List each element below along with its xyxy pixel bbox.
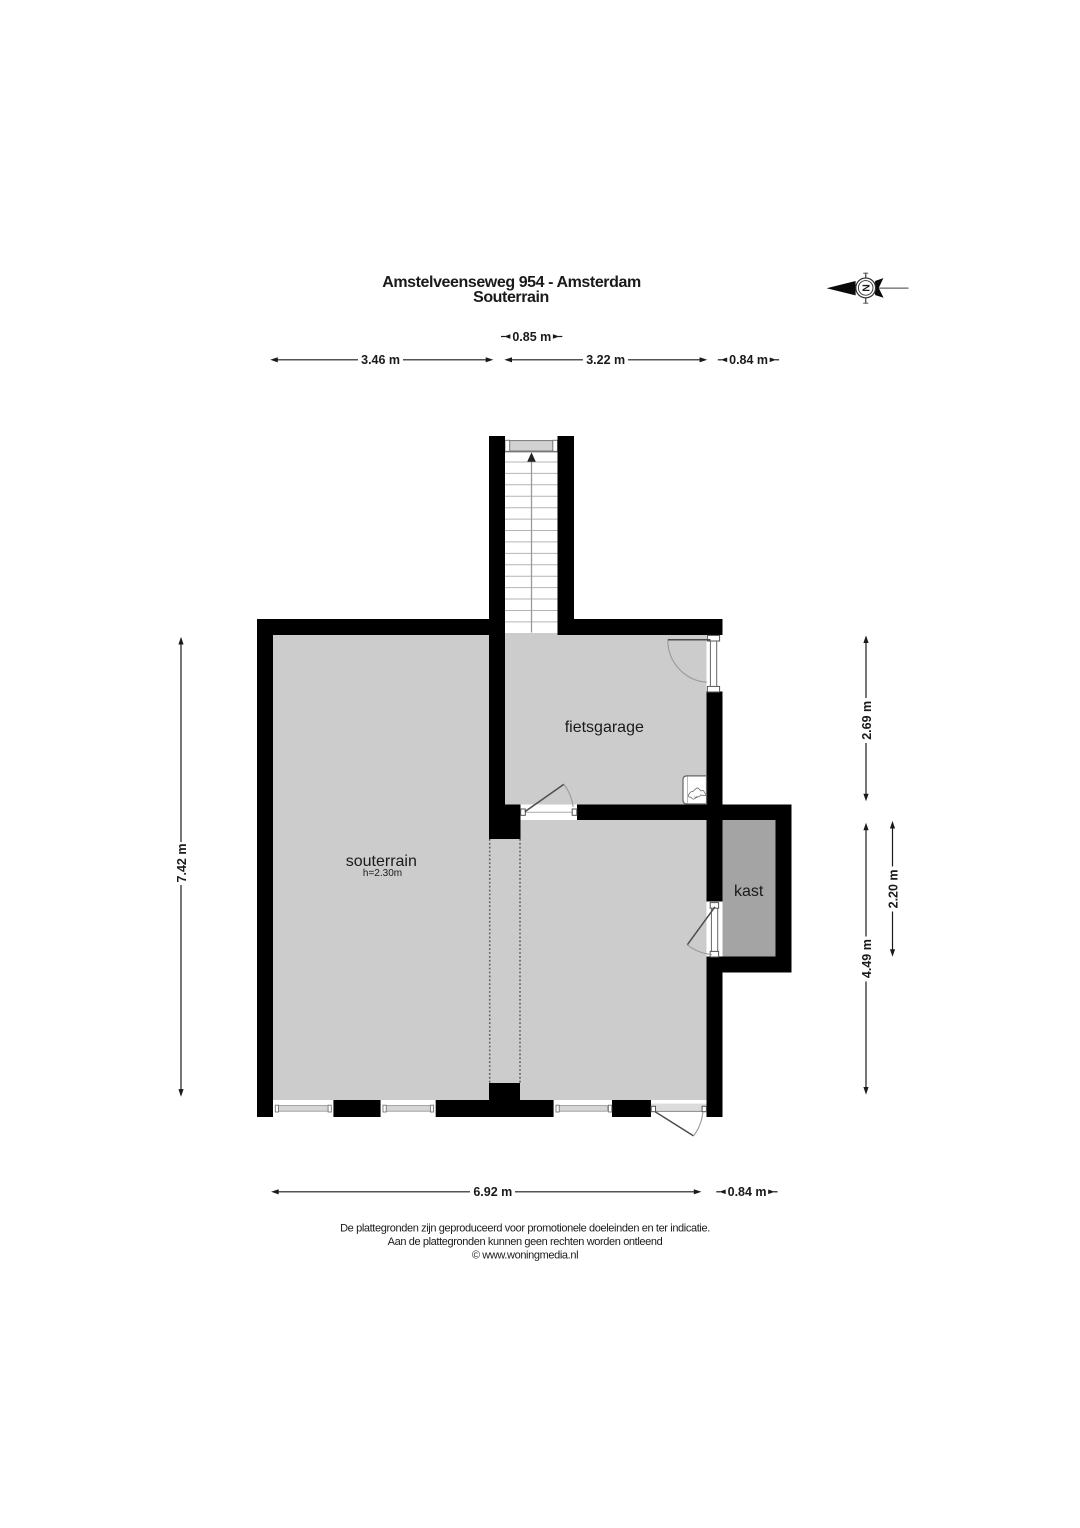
svg-text:De plattegronden zijn geproduc: De plattegronden zijn geproduceerd voor … [340, 1222, 710, 1234]
svg-text:2.20 m: 2.20 m [886, 869, 900, 908]
svg-text:h=2.30m: h=2.30m [363, 868, 402, 879]
svg-text:fietsgarage: fietsgarage [565, 719, 644, 736]
svg-text:7.42 m: 7.42 m [175, 844, 189, 883]
svg-text:2.69 m: 2.69 m [860, 701, 874, 740]
svg-text:3.22 m: 3.22 m [586, 353, 625, 367]
svg-text:0.85 m: 0.85 m [512, 330, 551, 344]
svg-text:kast: kast [734, 883, 764, 900]
svg-text:3.46 m: 3.46 m [361, 353, 400, 367]
svg-text:0.84 m: 0.84 m [729, 353, 768, 367]
svg-text:© www.woningmedia.nl: © www.woningmedia.nl [472, 1250, 578, 1262]
svg-text:Souterrain: Souterrain [473, 289, 549, 306]
svg-text:Aan de plattegronden kunnen ge: Aan de plattegronden kunnen geen rechten… [388, 1236, 663, 1248]
svg-text:0.84 m: 0.84 m [728, 1185, 767, 1199]
svg-text:N: N [860, 284, 872, 292]
svg-text:6.92 m: 6.92 m [473, 1185, 512, 1199]
svg-text:4.49 m: 4.49 m [860, 939, 874, 978]
